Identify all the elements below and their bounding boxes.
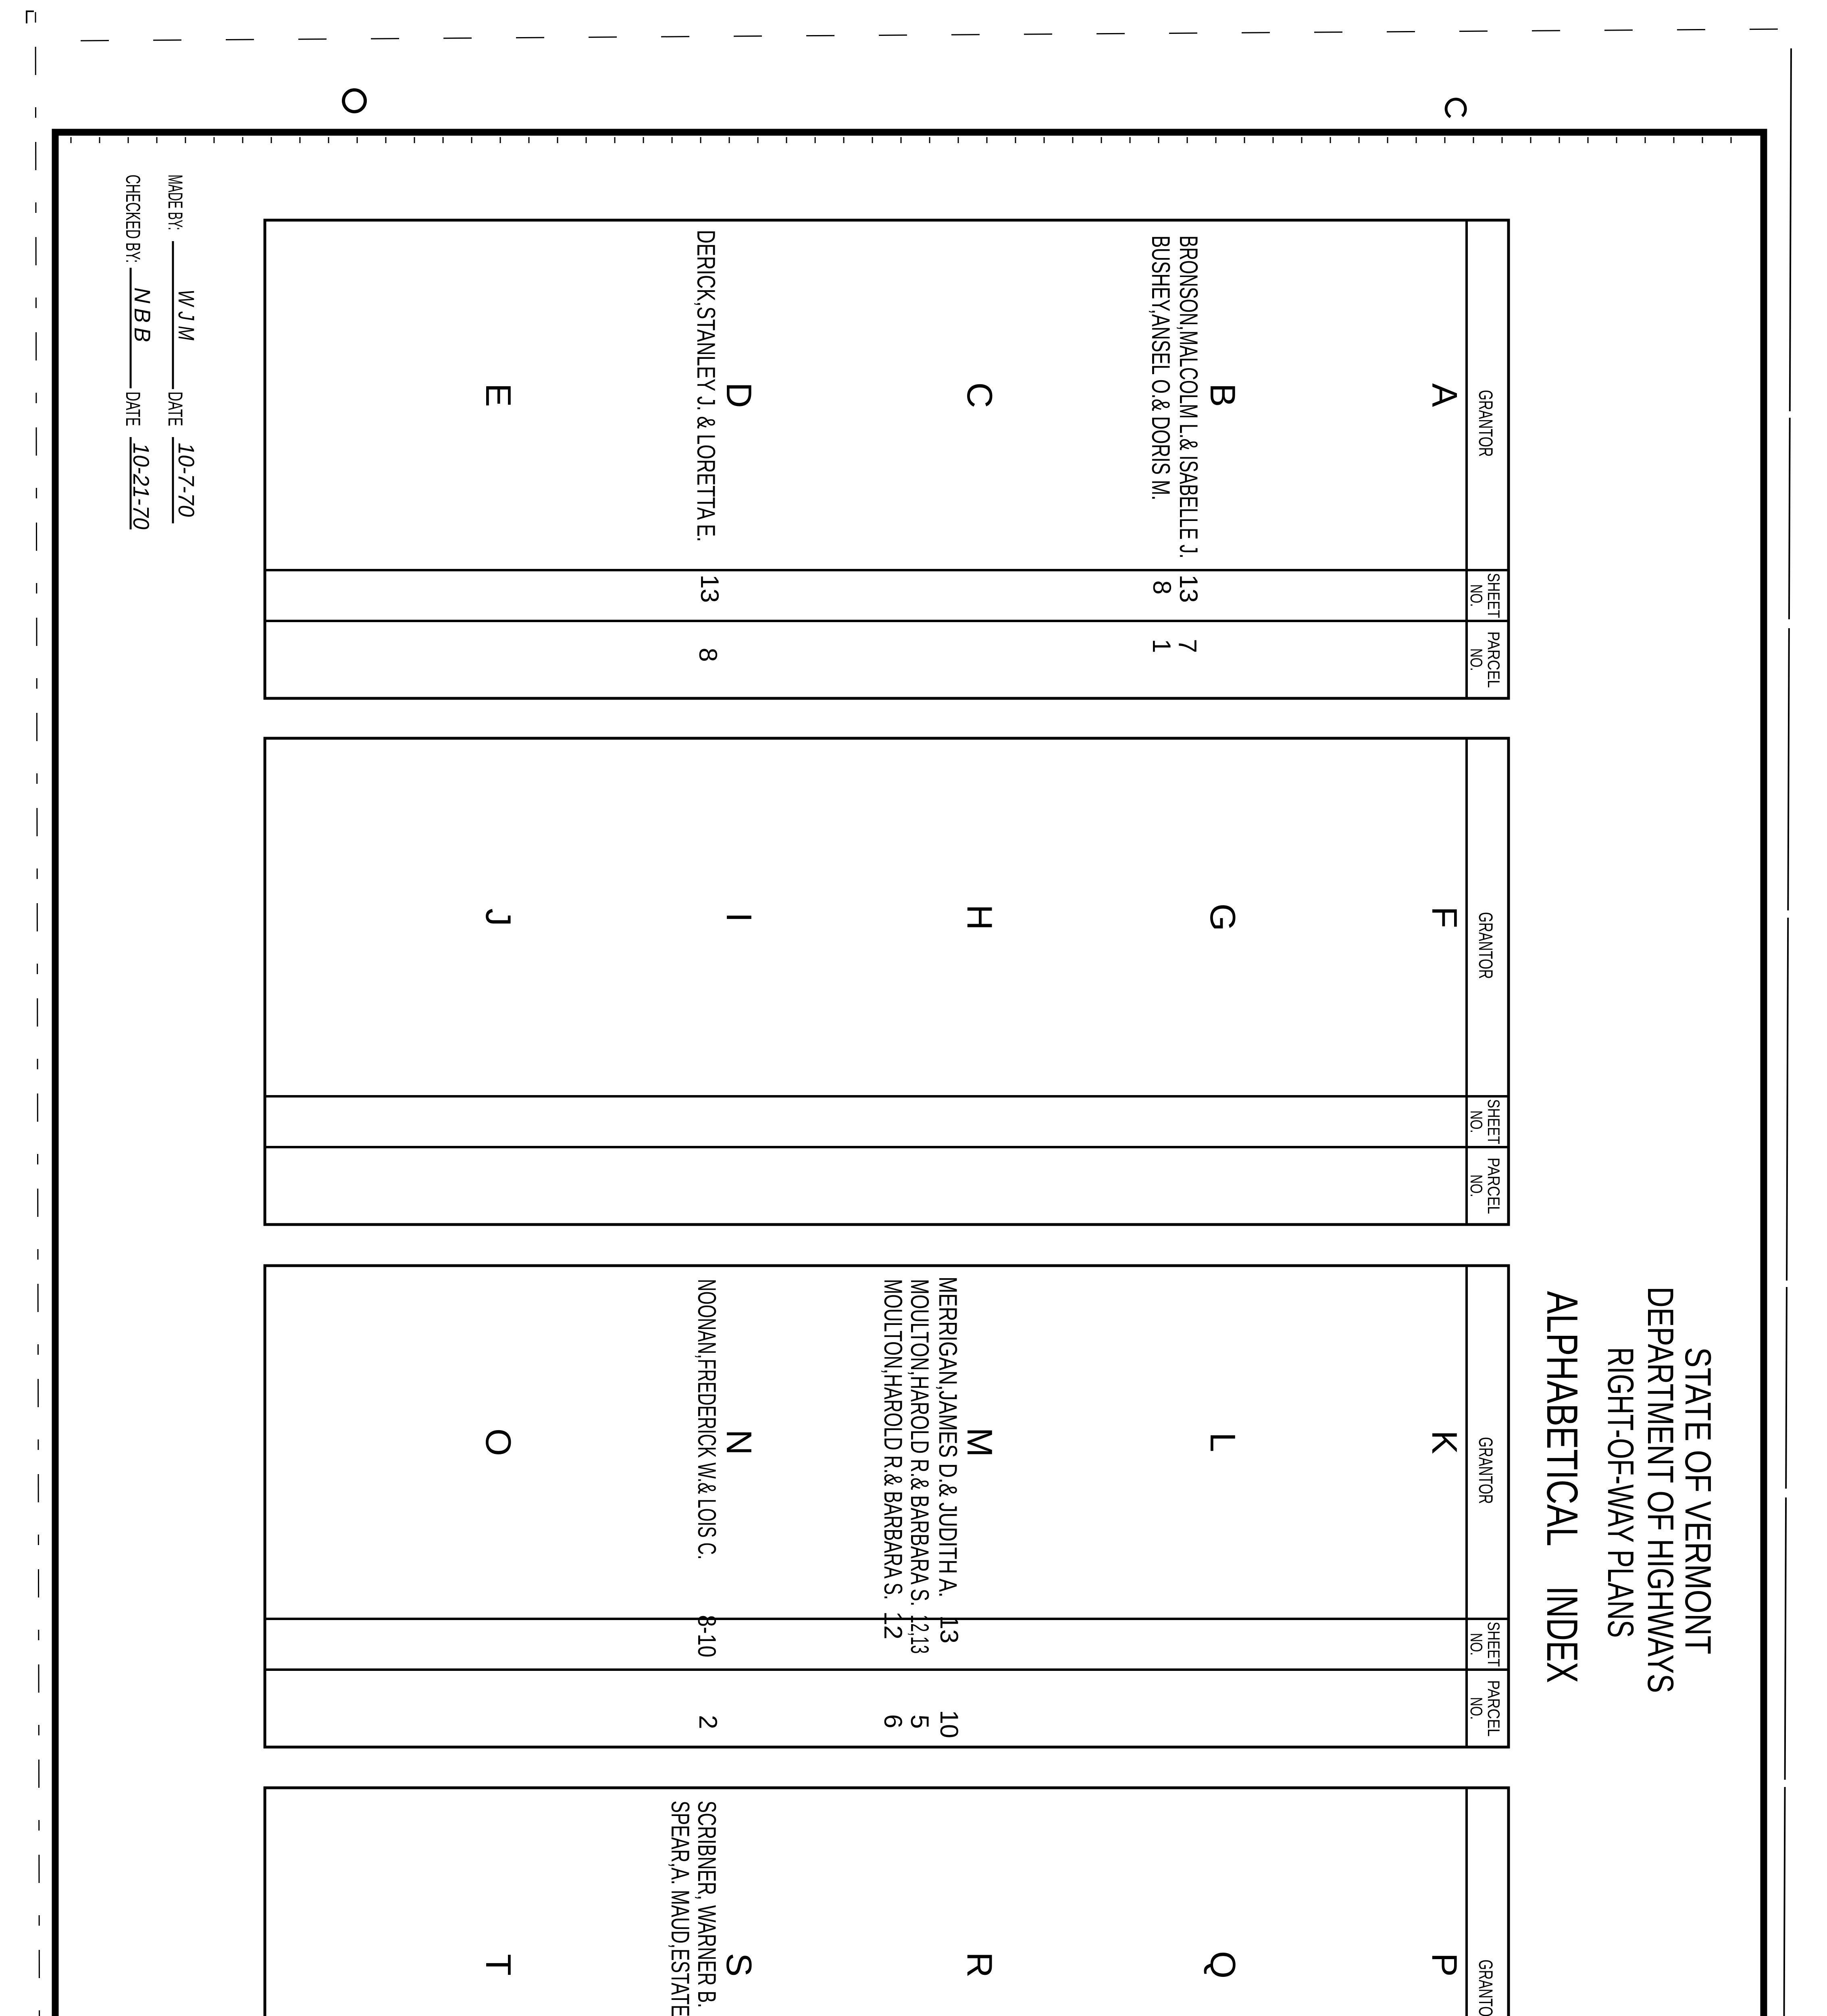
svg-text:13: 13 <box>935 1615 963 1643</box>
svg-text:10-7-70: 10-7-70 <box>174 443 199 517</box>
svg-text:PARCEL: PARCEL <box>1484 1680 1503 1737</box>
svg-text:DEPARTMENT OF HIGHWAYS: DEPARTMENT OF HIGHWAYS <box>1640 1287 1681 1693</box>
svg-text:8-10: 8-10 <box>693 1615 721 1658</box>
svg-text:M: M <box>960 1427 1000 1457</box>
svg-text:2: 2 <box>694 1715 722 1729</box>
svg-text:DERICK,STANLEY J. & LORETTA E.: DERICK,STANLEY J. & LORETTA E. <box>692 230 720 542</box>
svg-text:GRANTOR: GRANTOR <box>1475 1960 1496 2016</box>
svg-text:F: F <box>1425 906 1465 928</box>
svg-text:SHEET: SHEET <box>1484 1622 1503 1667</box>
svg-text:13: 13 <box>695 575 724 603</box>
svg-text:RIGHT-OF-WAY PLANS: RIGHT-OF-WAY PLANS <box>1600 1347 1641 1638</box>
svg-text:7: 7 <box>1173 639 1201 653</box>
svg-text:GRANTOR: GRANTOR <box>1475 1437 1496 1504</box>
svg-text:MADE BY:: MADE BY: <box>164 175 187 230</box>
svg-text:MERRIGAN,JAMES D.& JUDITH A.: MERRIGAN,JAMES D.& JUDITH A. <box>934 1277 962 1597</box>
svg-text:13: 13 <box>1174 575 1203 603</box>
svg-text:R: R <box>960 1952 1000 1978</box>
svg-text:I: I <box>719 912 759 922</box>
svg-text:NO.: NO. <box>1467 1110 1486 1133</box>
svg-text:8: 8 <box>1148 580 1176 594</box>
svg-text:5: 5 <box>905 1714 934 1729</box>
svg-text:L: L <box>1203 1433 1243 1452</box>
svg-text:H: H <box>960 904 1000 930</box>
svg-text:NBB: NBB <box>130 287 155 347</box>
svg-text:DATE: DATE <box>122 392 144 426</box>
svg-text:GRANTOR: GRANTOR <box>1475 390 1496 457</box>
svg-text:NO.: NO. <box>1467 648 1486 671</box>
svg-text:SHEET: SHEET <box>1484 1099 1503 1144</box>
svg-text:PARCEL: PARCEL <box>1484 631 1503 688</box>
svg-text:C: C <box>960 382 1000 408</box>
svg-text:STATE OF VERMONT: STATE OF VERMONT <box>1677 1347 1718 1654</box>
svg-text:10-21-70: 10-21-70 <box>129 443 154 529</box>
svg-text:J: J <box>479 908 518 926</box>
svg-text:6: 6 <box>879 1714 907 1728</box>
svg-text:10: 10 <box>935 1710 963 1738</box>
svg-text:MOULTON,HAROLD R.& BARBARA S.: MOULTON,HAROLD R.& BARBARA S. <box>905 1279 934 1606</box>
svg-text:DATE: DATE <box>164 392 187 426</box>
svg-text:BUSHEY,ANSEL O.& DORIS M.: BUSHEY,ANSEL O.& DORIS M. <box>1147 235 1175 500</box>
svg-text:NO.: NO. <box>1467 584 1486 607</box>
svg-text:B: B <box>1203 383 1243 407</box>
svg-text:NO.: NO. <box>1467 1697 1486 1720</box>
svg-text:PARCEL: PARCEL <box>1484 1158 1503 1214</box>
svg-text:GRANTOR: GRANTOR <box>1475 912 1496 979</box>
svg-text:D: D <box>719 382 759 408</box>
svg-text:NO.: NO. <box>1467 1633 1486 1656</box>
svg-text:NO.: NO. <box>1467 1175 1486 1197</box>
svg-text:SCRIBNER, WARNER B.: SCRIBNER, WARNER B. <box>693 1801 721 2008</box>
svg-text:NOONAN,FREDERICK W.& LOIS C.: NOONAN,FREDERICK W.& LOIS C. <box>693 1279 721 1560</box>
svg-text:CHECKED BY:: CHECKED BY: <box>122 175 144 263</box>
svg-text:INDEX: INDEX <box>1538 1586 1587 1683</box>
svg-text:Q: Q <box>1203 1951 1243 1979</box>
svg-text:ALPHABETICAL: ALPHABETICAL <box>1538 1291 1587 1546</box>
svg-text:A: A <box>1425 383 1465 407</box>
svg-text:SPEAR,A. MAUD,ESTATE: SPEAR,A. MAUD,ESTATE <box>666 1801 694 2016</box>
svg-text:T: T <box>479 1954 518 1976</box>
svg-text:P: P <box>1425 1953 1465 1977</box>
svg-text:G: G <box>1203 904 1243 931</box>
svg-text:WJM: WJM <box>174 289 199 346</box>
svg-text:8: 8 <box>694 648 722 662</box>
svg-text:N: N <box>719 1429 759 1455</box>
svg-text:E: E <box>479 383 518 407</box>
svg-text:S: S <box>719 1953 759 1977</box>
svg-text:K: K <box>1425 1431 1465 1454</box>
svg-text:12,13: 12,13 <box>905 1615 934 1654</box>
svg-text:MOULTON,HAROLD R.& BARBARA S.: MOULTON,HAROLD R.& BARBARA S. <box>879 1279 907 1600</box>
svg-text:O: O <box>479 1429 518 1456</box>
svg-text:SHEET: SHEET <box>1484 573 1503 618</box>
svg-text:BRONSON,MALCOLM L.& ISABELLE J: BRONSON,MALCOLM L.& ISABELLE J. <box>1174 235 1203 558</box>
svg-text:1: 1 <box>1147 639 1176 653</box>
svg-text:12: 12 <box>879 1611 907 1639</box>
